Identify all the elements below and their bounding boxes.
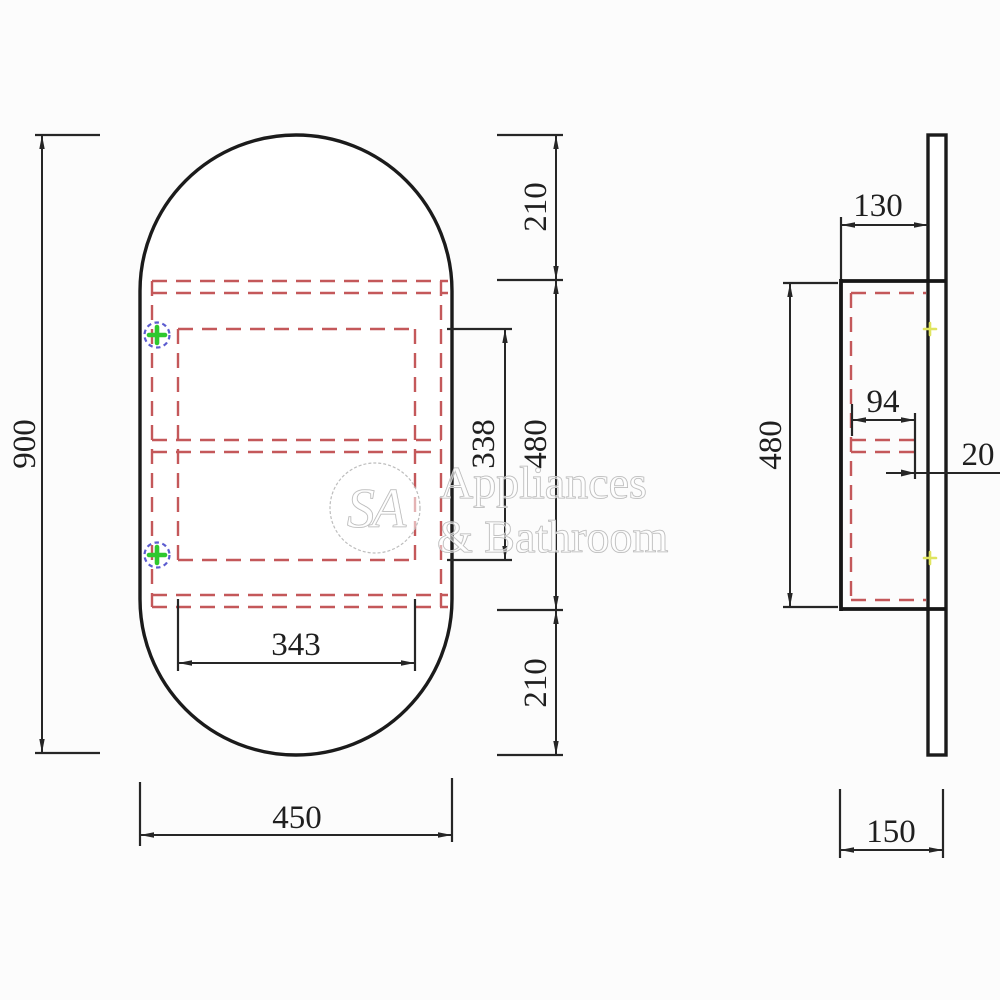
watermark-line2: & Bathroom bbox=[437, 511, 668, 562]
dim-shelf-depth-label: 94 bbox=[867, 384, 900, 420]
dim-overall-width: 450 bbox=[140, 778, 452, 846]
dim-overall-height: 900 bbox=[7, 135, 100, 753]
mirror-cabinet-drawing: 900 210 480 210 338 bbox=[0, 0, 1000, 1000]
dim-top-offset: 210 bbox=[497, 135, 563, 280]
dim-overall-depth-label: 150 bbox=[866, 814, 916, 850]
dim-overall-width-label: 450 bbox=[272, 800, 322, 836]
technical-drawing-canvas: 900 210 480 210 338 bbox=[0, 0, 1000, 1000]
mirror-panel-side bbox=[928, 135, 946, 755]
dim-overall-depth: 150 bbox=[840, 789, 943, 858]
dim-overall-height-label: 900 bbox=[7, 419, 43, 469]
watermark-monogram: SA bbox=[347, 478, 407, 540]
dim-bottom-offset-label: 210 bbox=[518, 658, 554, 708]
dim-cabinet-depth: 130 bbox=[841, 188, 928, 279]
dim-cabinet-height-side-label: 480 bbox=[753, 420, 789, 470]
dim-bottom-offset: 210 bbox=[497, 610, 563, 755]
dim-panel-thickness-label: 20 bbox=[962, 437, 995, 473]
dim-cabinet-depth-label: 130 bbox=[853, 188, 903, 224]
watermark: SA Appliances & Bathroom bbox=[330, 457, 668, 562]
dim-shelf-depth: 94 bbox=[852, 384, 915, 479]
dim-top-offset-label: 210 bbox=[518, 182, 554, 232]
side-view: 130 480 94 20 150 bbox=[753, 135, 1000, 858]
dim-arrow-icon bbox=[901, 470, 915, 477]
dim-opening-width-label: 343 bbox=[271, 627, 321, 663]
watermark-line1: Appliances bbox=[440, 457, 647, 508]
dim-cabinet-height-side: 480 bbox=[753, 283, 838, 607]
